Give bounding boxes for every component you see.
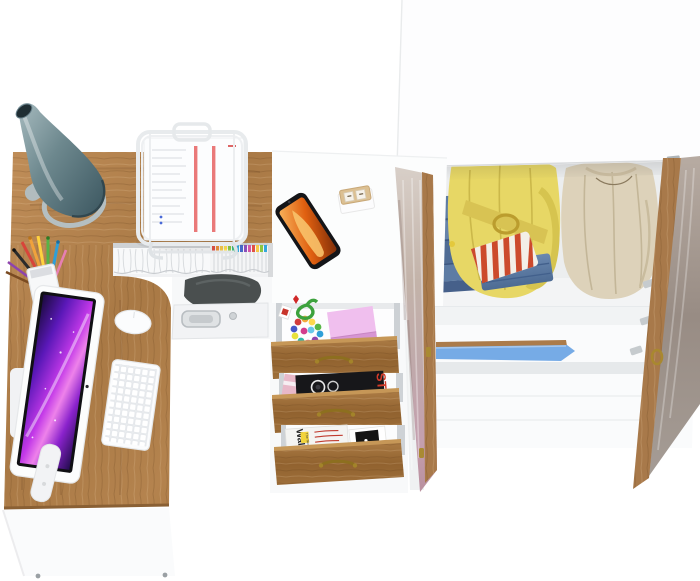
- magazine-cover-text: ST: [373, 372, 389, 390]
- product-render-scene: ST Wall The New: [0, 0, 700, 581]
- drawer-bottom-front: [274, 439, 404, 485]
- stand-papers: [144, 138, 244, 240]
- scene-canvas: ST Wall The New: [0, 0, 700, 581]
- wardrobe-top-panel: [397, 0, 700, 170]
- lock-knob: [230, 313, 237, 320]
- drawer-pedestal: ST Wall The New: [270, 295, 424, 493]
- desk-foot-left: [36, 574, 41, 579]
- document-stand: [136, 124, 248, 258]
- gold-hinge: [419, 448, 424, 458]
- gold-hinge: [426, 347, 431, 357]
- beige-coat: [561, 161, 659, 299]
- chrome-handle: [182, 311, 220, 327]
- desk-foot-right: [163, 573, 168, 578]
- desk-front-panel: [3, 508, 175, 578]
- storage-compartment: [172, 274, 272, 339]
